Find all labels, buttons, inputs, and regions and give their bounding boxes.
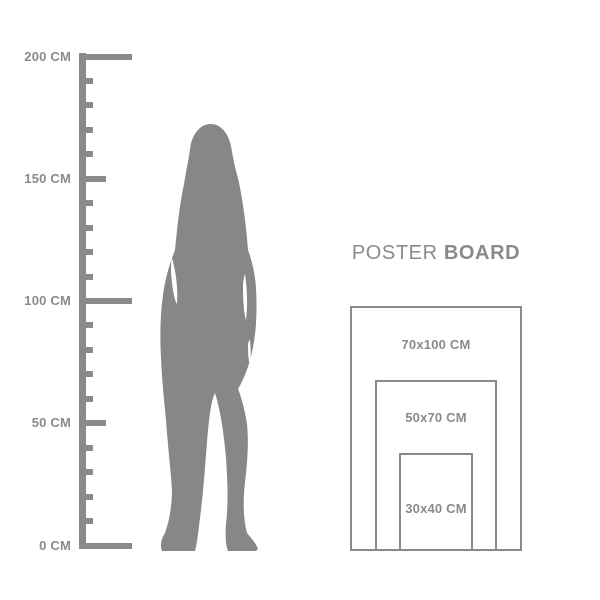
poster-board-title-bold: BOARD: [444, 242, 520, 264]
poster-size-label-70x100: 70x100 CM: [350, 336, 522, 354]
size-comparison-diagram: 200 CM 150 CM 100 CM 50 CM 0 CM POSTER B…: [0, 0, 600, 600]
poster-size-label-50x70: 50x70 CM: [375, 409, 498, 427]
poster-board-title-regular: POSTER: [352, 242, 438, 264]
poster-board-title: POSTER BOARD: [350, 241, 522, 265]
silhouette-body: [160, 124, 258, 551]
poster-size-label-30x40: 30x40 CM: [399, 500, 473, 518]
